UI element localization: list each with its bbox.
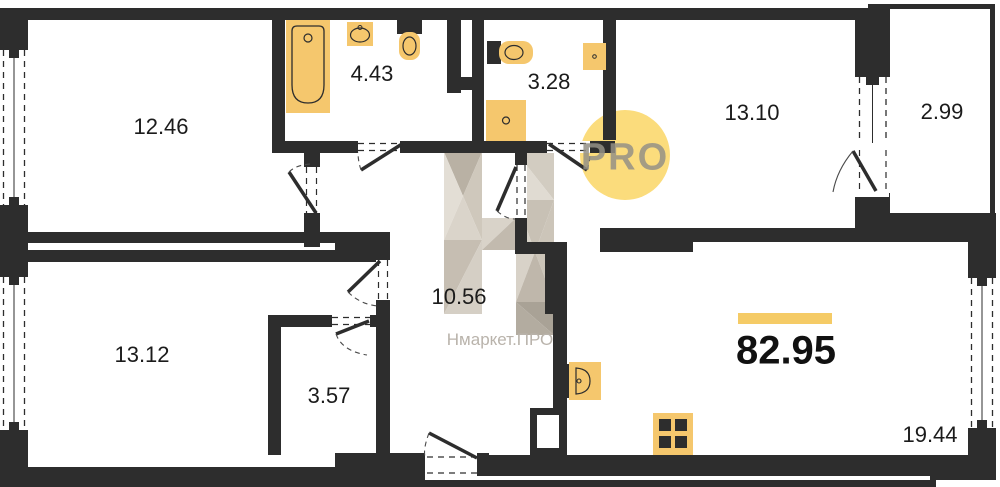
wall xyxy=(285,141,358,153)
stove-burner xyxy=(675,436,687,448)
wall xyxy=(477,453,489,476)
wall xyxy=(447,20,461,93)
room-area-label-10-56: 10.56 xyxy=(431,284,486,310)
wall xyxy=(0,205,28,277)
shaft xyxy=(448,93,472,138)
total-area-accent-bar xyxy=(738,313,832,324)
door-arc xyxy=(348,292,379,306)
room-area-label-13-12: 13.12 xyxy=(114,342,169,368)
shower xyxy=(486,100,526,141)
wall xyxy=(8,8,890,20)
door-leaf xyxy=(348,261,380,292)
toilet-bowl xyxy=(499,41,533,64)
total-area-value: 82.95 xyxy=(736,329,836,374)
door-leaf xyxy=(497,167,516,211)
window-stop xyxy=(9,422,19,430)
door-arc xyxy=(497,211,515,219)
balcony-door-leaf xyxy=(853,151,876,191)
room-area-label-12-46: 12.46 xyxy=(133,114,188,140)
wall xyxy=(376,315,390,455)
wall xyxy=(272,20,285,153)
wall xyxy=(0,8,28,50)
wall xyxy=(603,20,616,140)
door-arc xyxy=(358,152,361,170)
door-arc xyxy=(833,151,853,192)
wall xyxy=(28,250,376,262)
window-stop xyxy=(9,50,19,58)
wall xyxy=(968,242,996,278)
wall xyxy=(370,315,390,327)
toilet-bowl xyxy=(399,32,420,60)
wall xyxy=(28,232,335,243)
pro-logo-text: PRO xyxy=(581,137,669,180)
wall xyxy=(515,242,545,254)
sink xyxy=(583,43,606,70)
wall xyxy=(480,455,996,476)
room-area-label-13-10: 13.10 xyxy=(724,100,779,126)
wall xyxy=(0,467,345,487)
window-stop xyxy=(9,277,19,285)
wall xyxy=(460,77,472,90)
wall xyxy=(281,315,332,327)
wall-balcony-thin xyxy=(990,4,995,228)
wall xyxy=(376,250,390,260)
watermark-brand-text: Нмаркет.ПРО xyxy=(447,330,553,350)
toilet-tank xyxy=(397,20,422,34)
entrance-door-leaf xyxy=(429,433,477,458)
room-area-label-2-99: 2.99 xyxy=(921,99,964,125)
stove-burner xyxy=(659,436,671,448)
wall xyxy=(600,228,693,252)
duct-inner xyxy=(537,415,559,448)
wall xyxy=(345,480,936,487)
room-area-label-3-28: 3.28 xyxy=(528,69,571,95)
wall xyxy=(555,364,571,398)
door-sill xyxy=(855,143,889,150)
wall xyxy=(515,153,527,165)
wall xyxy=(400,141,547,153)
wall xyxy=(268,315,281,455)
floor-plan xyxy=(0,0,1000,487)
wall xyxy=(545,242,567,314)
window-stop xyxy=(977,420,987,428)
door-arc xyxy=(425,433,430,457)
wall xyxy=(472,20,484,141)
kitchen-sink xyxy=(569,362,601,400)
wall xyxy=(968,428,996,475)
stove-burner xyxy=(659,419,671,431)
door-arc xyxy=(336,334,367,355)
wall xyxy=(855,8,890,77)
wall xyxy=(376,300,390,315)
stove-burner xyxy=(675,419,687,431)
room-area-label-3-57: 3.57 xyxy=(308,383,351,409)
room-area-label-19-44: 19.44 xyxy=(902,422,957,448)
window-stop xyxy=(9,197,19,205)
floor-plan-page: 12.46 4.43 3.28 13.10 2.99 10.56 13.12 3… xyxy=(0,0,1000,487)
room-area-label-4-43: 4.43 xyxy=(351,61,394,87)
window-stop xyxy=(866,77,879,85)
door-sill xyxy=(855,190,889,197)
window-stop xyxy=(977,278,987,286)
toilet-tank xyxy=(487,41,501,64)
